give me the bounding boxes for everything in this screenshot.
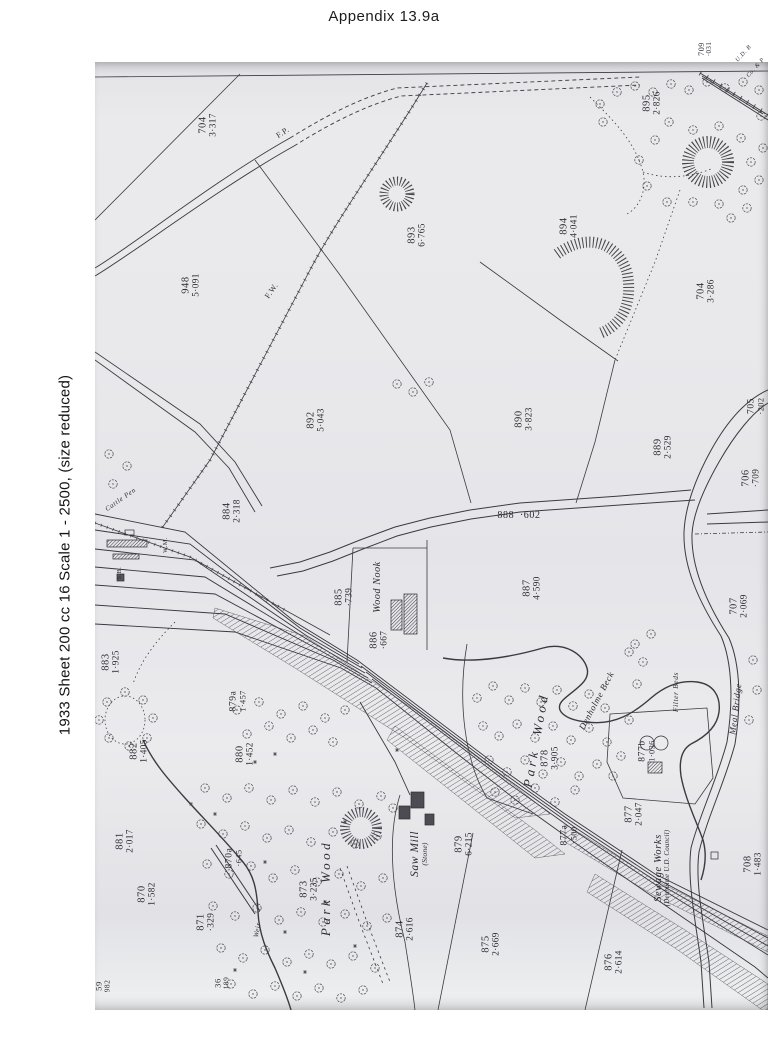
saw-mill-building [399,806,410,819]
parcel-label-709: 709·031 [698,42,714,57]
roads [270,76,768,1008]
page-title: Appendix 13.9a [0,8,768,25]
map-artwork [95,62,768,1010]
park-wood-stream [143,740,291,1010]
embankment-hatching [213,608,768,1010]
streams [143,646,719,1010]
footway-line [162,83,427,528]
filter-bed [640,736,654,750]
wood-nook-building [391,600,402,630]
place-label: U.D. B [735,44,753,63]
neatline [95,71,768,77]
mill-goit [211,848,255,914]
buildings [107,530,718,859]
filter-bed [654,736,668,750]
sewage-works-building [648,762,662,773]
map-scan [95,62,768,1010]
lanes [95,77,640,512]
scanned-document-page: Appendix 13.9a 1933 Sheet 200 cc 16 Scal… [0,0,768,1056]
sheet-caption: 1933 Sheet 200 cc 16 Scale 1 - 2500, (si… [57,375,74,735]
